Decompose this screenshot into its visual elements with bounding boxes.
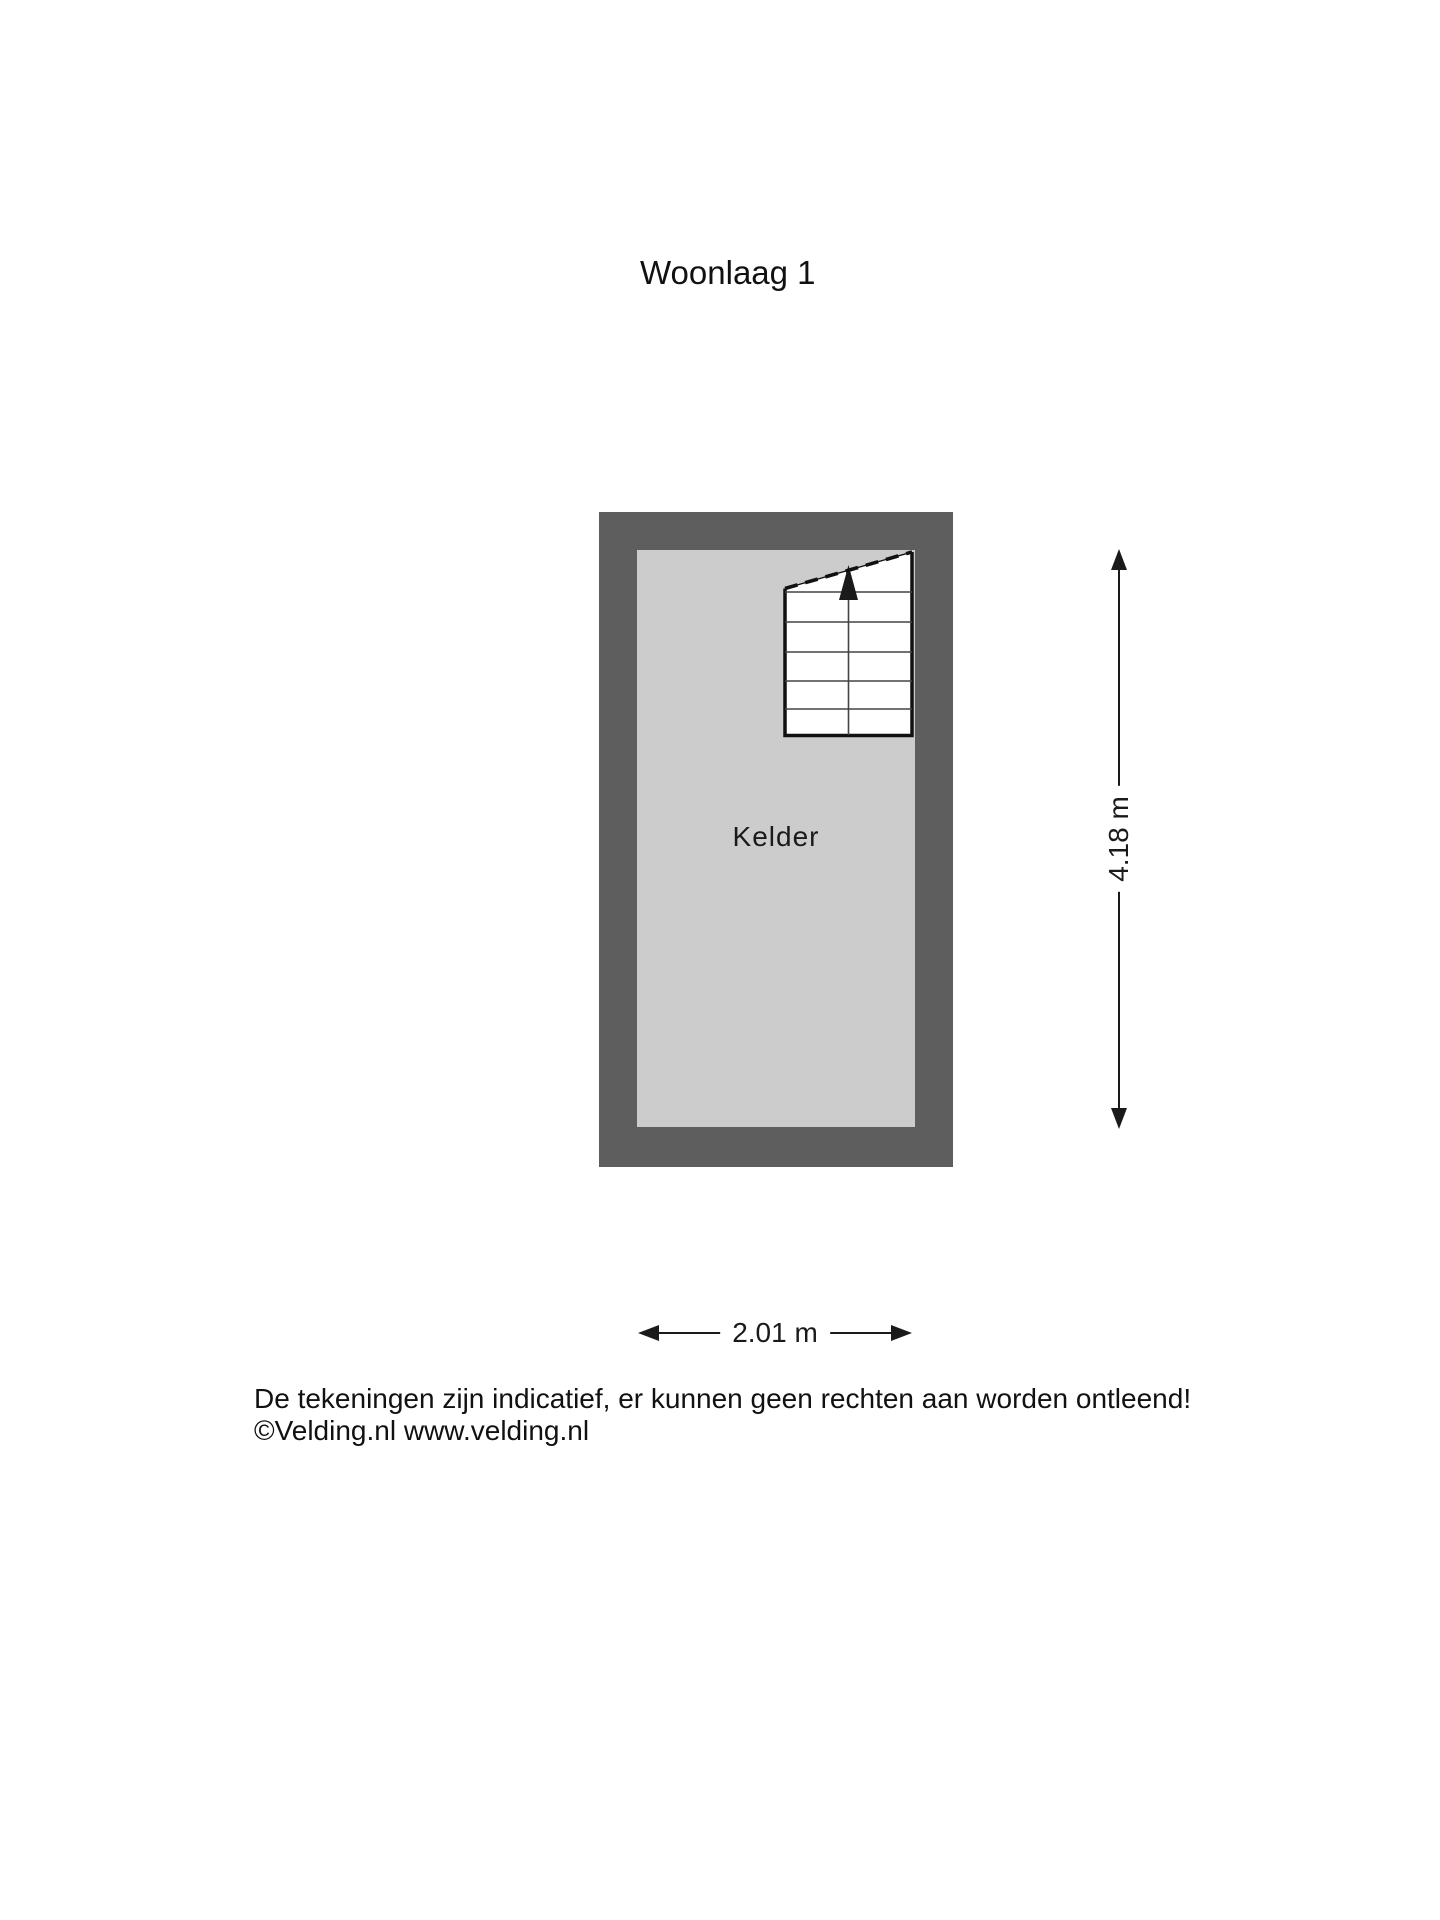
disclaimer-line2: ©Velding.nl www.velding.nl — [254, 1415, 1191, 1447]
disclaimer-line1: De tekeningen zijn indicatief, er kunnen… — [254, 1383, 1191, 1415]
arrow-down-icon — [1111, 1108, 1127, 1129]
dimension-label-height: 4.18 m — [1104, 786, 1134, 892]
arrow-right-icon — [891, 1325, 912, 1341]
disclaimer: De tekeningen zijn indicatief, er kunnen… — [254, 1383, 1191, 1447]
staircase — [783, 550, 914, 738]
floor-plan-outer-wall: Kelder — [599, 512, 953, 1167]
room-label: Kelder — [637, 822, 915, 852]
vertical-dimension: 4.18 m — [1110, 549, 1127, 1129]
page-title: Woonlaag 1 — [640, 256, 816, 289]
dimension-label-width: 2.01 m — [720, 1318, 830, 1348]
horizontal-dimension: 2.01 m — [638, 1322, 912, 1343]
